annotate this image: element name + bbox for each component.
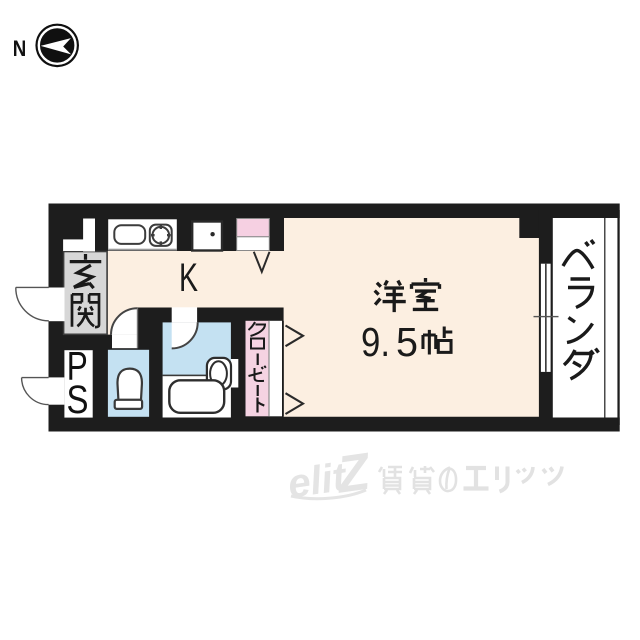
svg-text:N: N [13, 36, 26, 61]
svg-text:S: S [67, 378, 89, 422]
svg-text:9.: 9. [361, 319, 390, 365]
svg-text:5: 5 [396, 319, 418, 365]
svg-text:K: K [179, 256, 198, 300]
